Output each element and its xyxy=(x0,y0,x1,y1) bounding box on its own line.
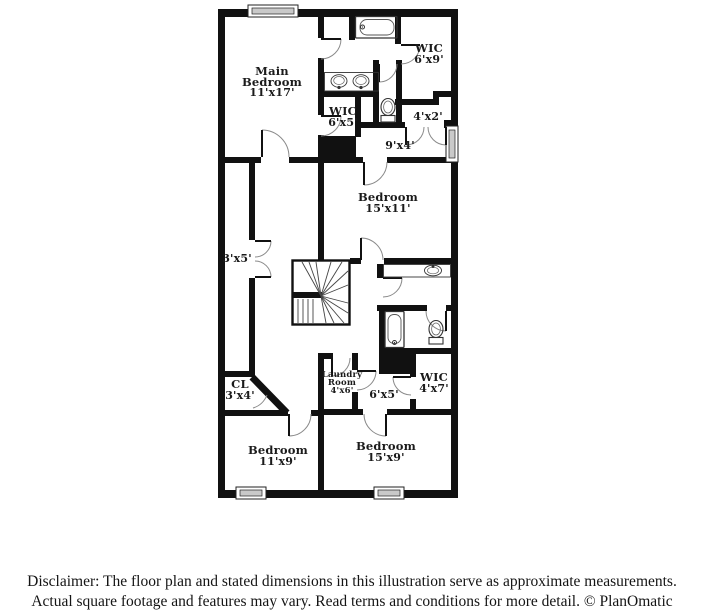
room-label-wic-4x7: WIC 4'x7' xyxy=(419,372,449,394)
room-label-closet-4x2: 4'x2' xyxy=(413,111,443,123)
bathtub-bottom-icon xyxy=(385,312,404,348)
floor-plan-drawing xyxy=(0,0,704,546)
door-arc-toilet-room xyxy=(379,64,397,82)
window-bottom-left xyxy=(236,487,266,499)
room-label-bedroom-15x9: Bedroom 15'x9' xyxy=(356,441,416,463)
door-arc-bedroom-15x11-entry xyxy=(364,162,387,185)
door-arc-closet-3x5-top xyxy=(255,241,271,257)
room-label-bedroom-15x11: Bedroom 15'x11' xyxy=(358,192,418,214)
disclaimer-line-1: Disclaimer: The floor plan and stated di… xyxy=(0,572,704,592)
room-label-closet-3x5: 3'x5' xyxy=(222,253,252,265)
floor-plan: Main Bedroom 11'x17' WIC 6'x9' WIC 6'x5'… xyxy=(0,0,704,546)
door-arc-sink-room xyxy=(383,278,402,297)
door-arc-main-bedroom xyxy=(262,130,289,157)
door-arc-main-bath xyxy=(321,39,341,59)
room-label-laundry: Laundry Room 4'x6' xyxy=(322,371,363,395)
door-arc-closet-3x5-bottom xyxy=(255,261,271,277)
toilet-top-icon xyxy=(381,99,395,123)
door-arc-closet-4x2-right xyxy=(428,127,446,145)
door-arc-bedroom-15x11-bath xyxy=(361,238,383,260)
room-label-closet-cl: CL 3'x4' xyxy=(225,379,255,401)
disclaimer-line-2: Actual square footage and features may v… xyxy=(0,592,704,612)
room-label-wic-6x9: WIC 6'x9' xyxy=(414,43,444,65)
door-arc-closet-cl xyxy=(253,395,267,408)
door-arc-bedroom-15x9 xyxy=(364,414,386,436)
room-label-bedroom-11x9: Bedroom 11'x9' xyxy=(248,445,308,467)
chase-block-bottom xyxy=(379,348,412,374)
fixtures xyxy=(292,17,451,348)
double-sink-vanity-icon xyxy=(325,73,379,92)
door-arc-bedroom-11x9 xyxy=(289,414,311,436)
disclaimer: Disclaimer: The floor plan and stated di… xyxy=(0,572,704,611)
room-label-main-bedroom: Main Bedroom 11'x17' xyxy=(242,66,302,99)
window-right xyxy=(446,126,458,162)
floor-plan-page: { "plan": { "title": "Second floor plan"… xyxy=(0,0,704,616)
staircase-icon xyxy=(292,261,350,325)
bathtub-top-icon xyxy=(356,17,398,39)
window-top xyxy=(248,5,298,17)
sink-vanity-icon xyxy=(384,265,451,278)
room-label-hall-9x4: 9'x4' xyxy=(385,140,415,152)
window-bottom-middle xyxy=(374,487,404,499)
room-label-hall-6x5: 6'x5' xyxy=(369,389,399,401)
room-label-wic-6x5: WIC 6'x5' xyxy=(328,106,358,128)
diagonal-wall xyxy=(252,377,287,413)
